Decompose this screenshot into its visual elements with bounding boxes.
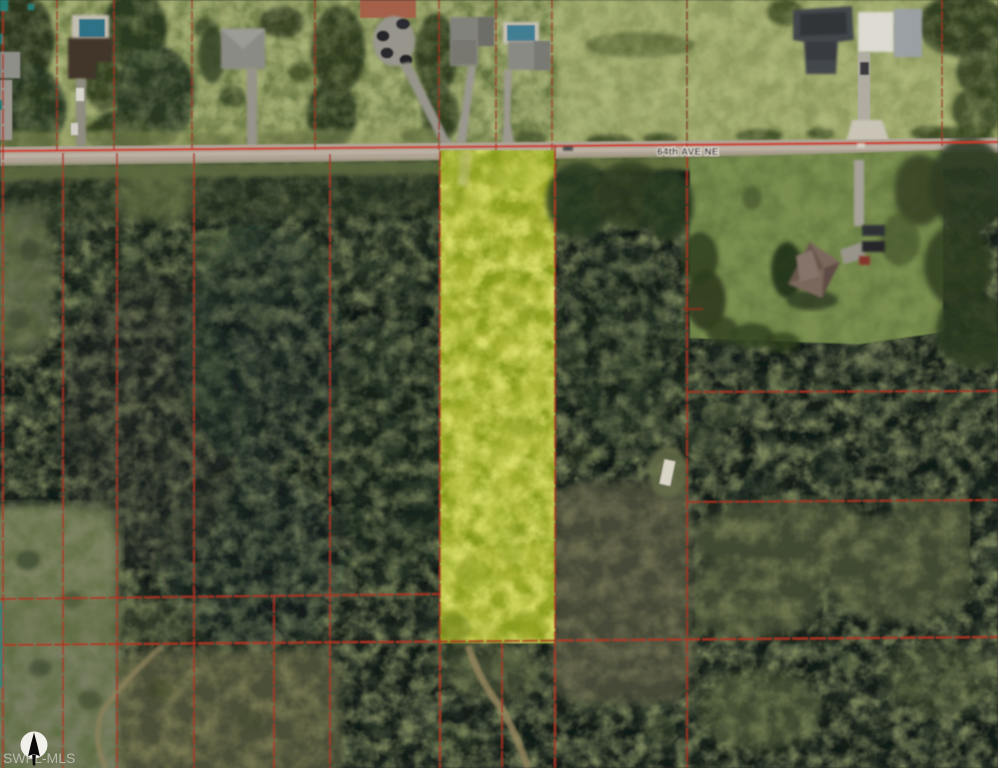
svg-text:64th AVE NE: 64th AVE NE — [657, 147, 719, 158]
